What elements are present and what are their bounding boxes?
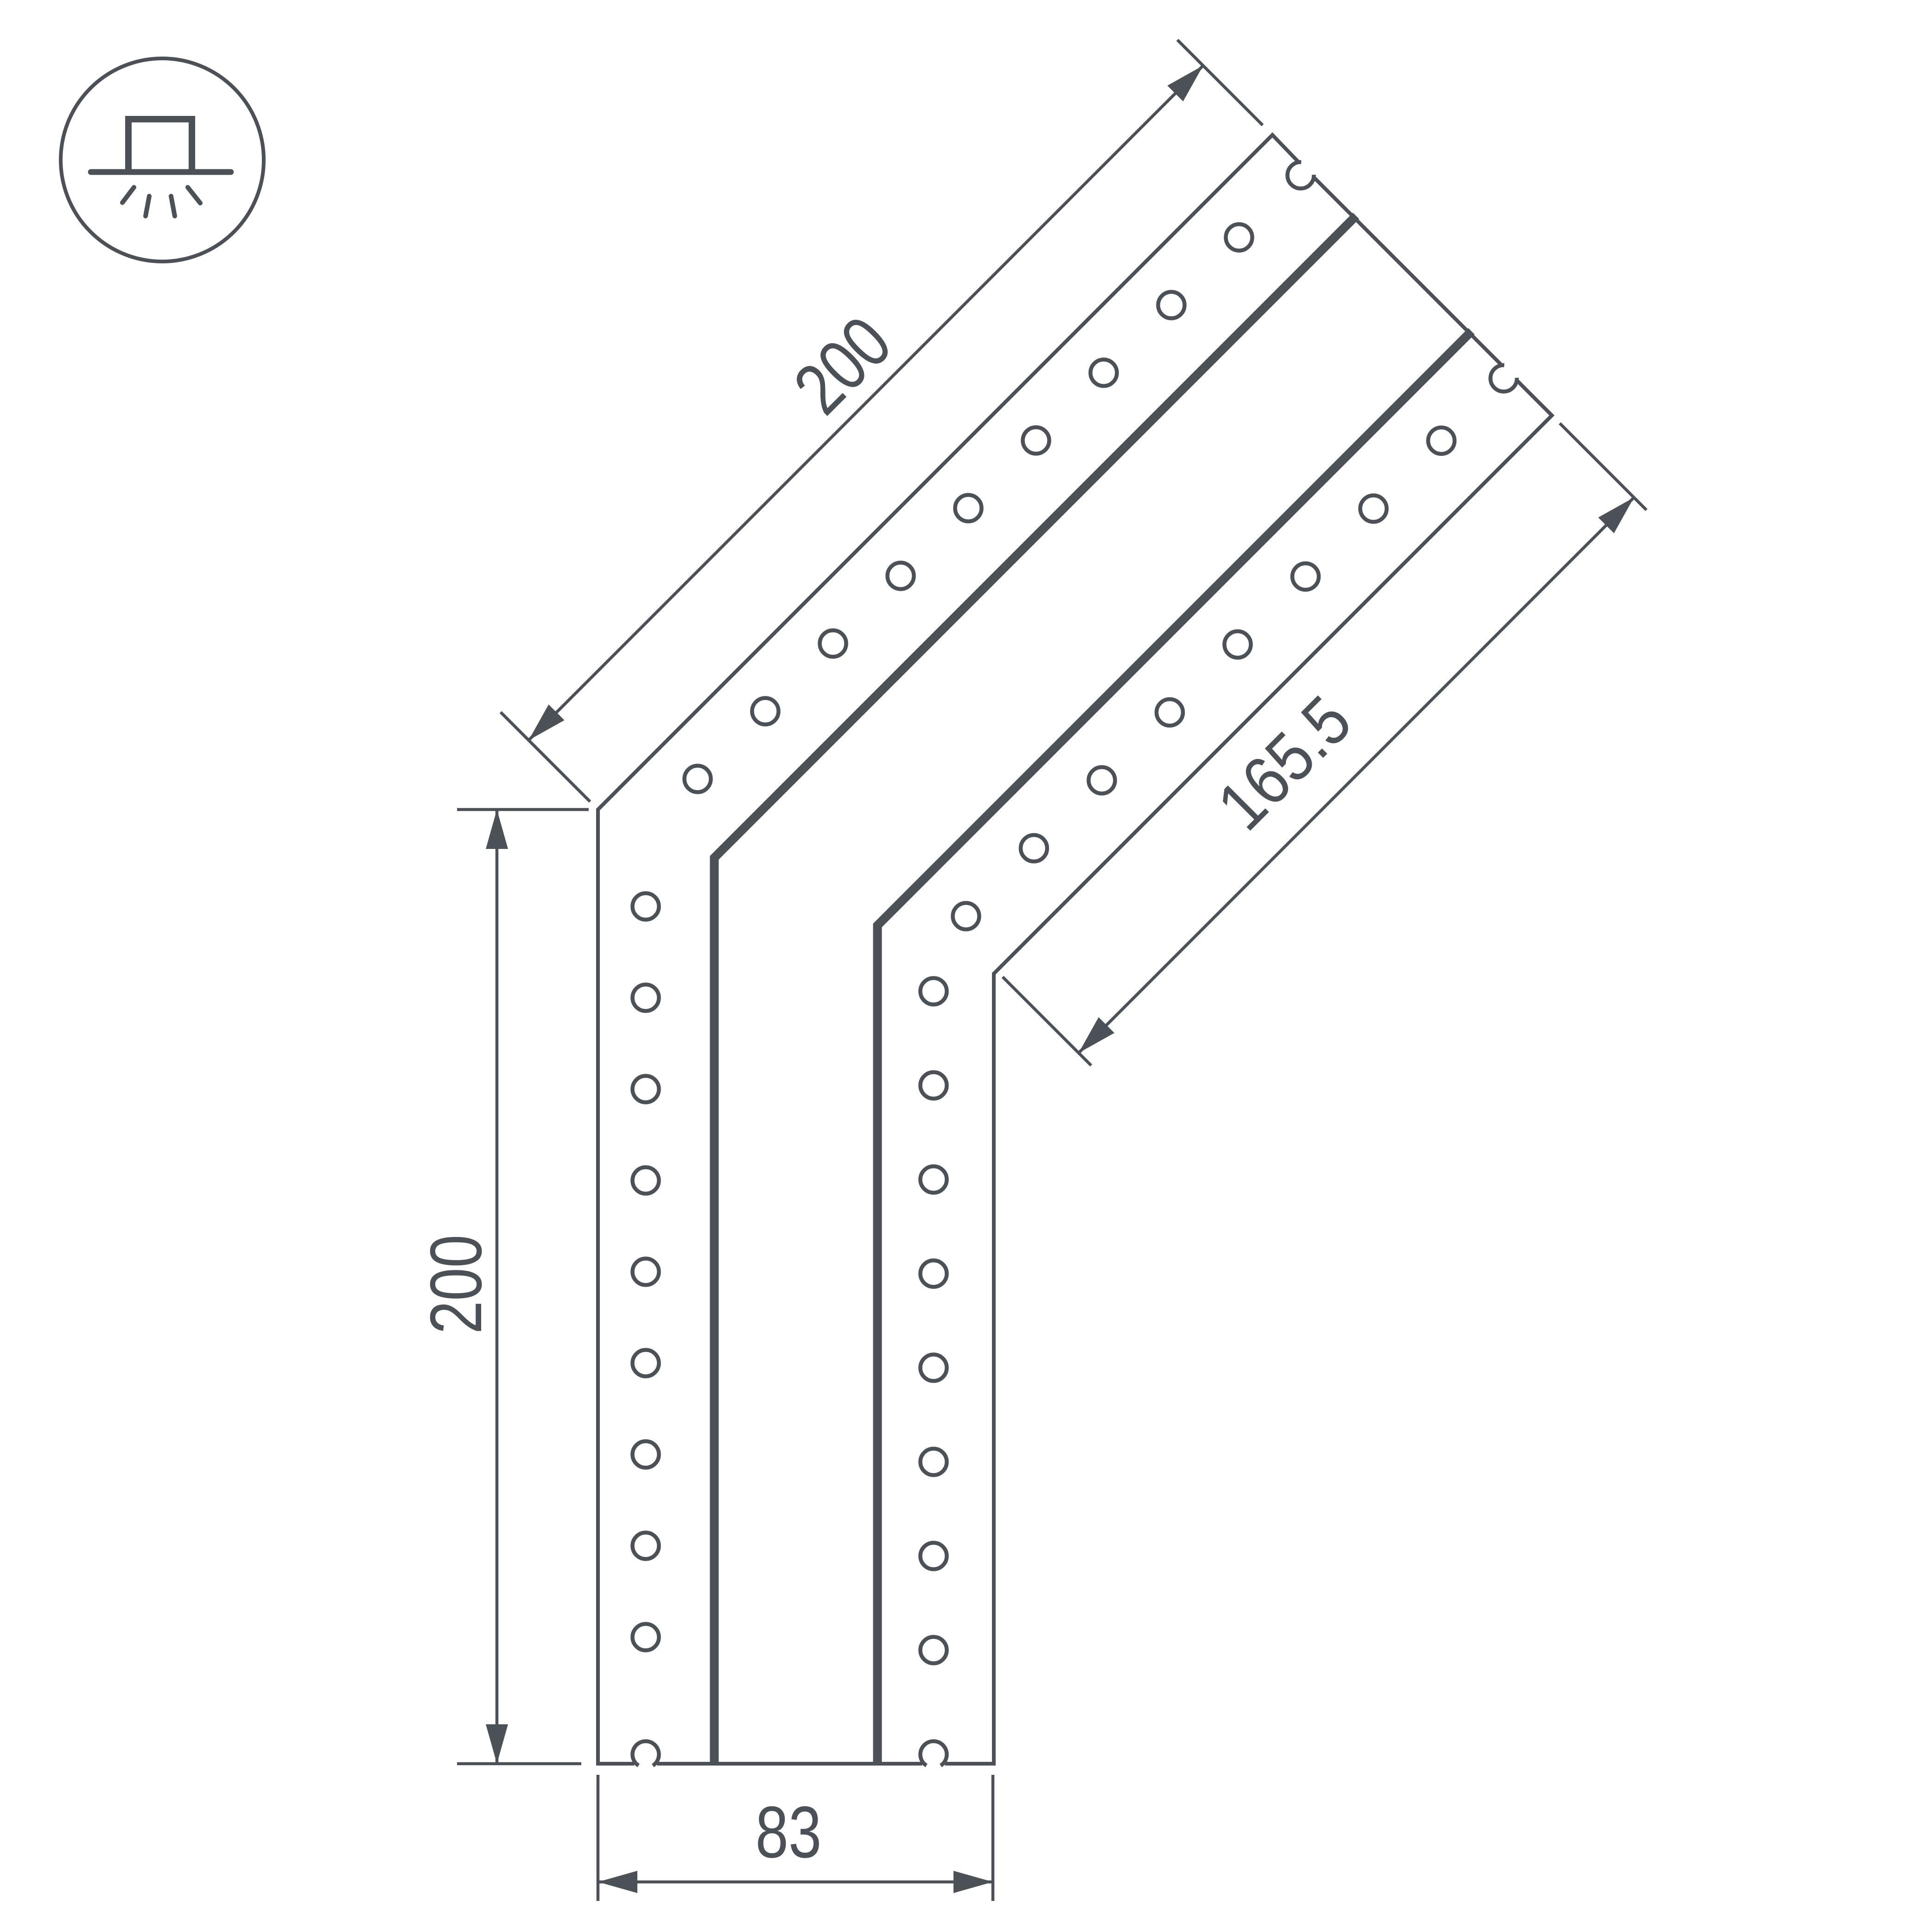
svg-text:200: 200 bbox=[415, 1235, 497, 1334]
svg-text:83: 83 bbox=[756, 1791, 822, 1873]
